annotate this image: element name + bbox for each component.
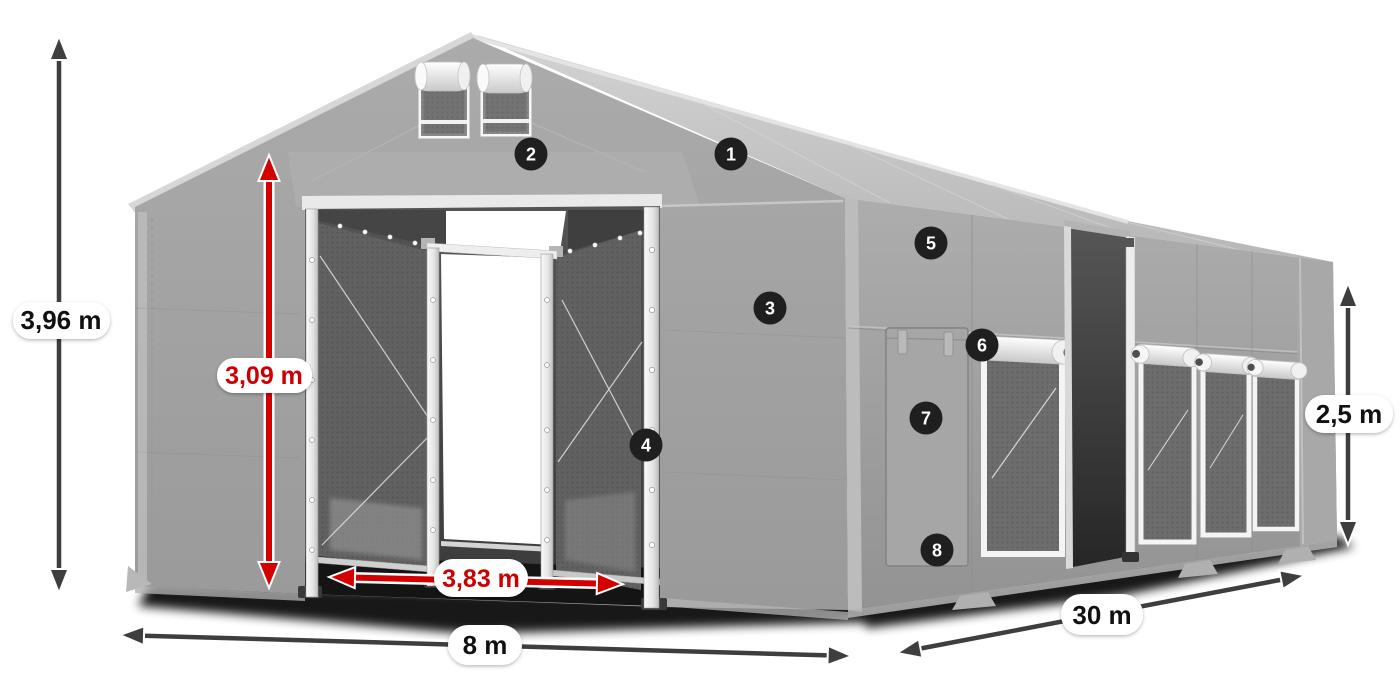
badge-number: 2 [526, 145, 536, 165]
badge-number: 4 [641, 436, 651, 456]
feature-badge-3[interactable]: 3 [754, 292, 787, 325]
badge-number: 8 [932, 541, 942, 561]
dim-side-height-label: 2,5 m [1305, 395, 1393, 433]
length-value: 30 m [1072, 600, 1131, 630]
side-door-flap [886, 328, 968, 566]
side-window-3 [1194, 353, 1260, 535]
side-height-value: 2,5 m [1316, 399, 1383, 429]
dim-width-label: 8 m [448, 625, 522, 665]
dim-door-width-label: 3,83 m [434, 559, 528, 597]
side-sliding-door-opening [1064, 220, 1139, 569]
gable-vent-right [477, 64, 532, 134]
total-height-value: 3,96 m [21, 305, 102, 335]
feature-badge-8[interactable]: 8 [921, 534, 954, 567]
front-door-opening [298, 206, 667, 610]
badge-number: 6 [977, 336, 987, 356]
feature-badge-5[interactable]: 5 [915, 227, 948, 260]
tent-body [126, 32, 1337, 620]
door-width-value: 3,83 m [442, 565, 520, 593]
door-height-value: 3,09 m [225, 362, 303, 390]
badge-number: 7 [921, 409, 931, 429]
badge-number: 1 [726, 145, 736, 165]
tent-product-illustration: 3,96 m 3,09 m 3,83 m 8 m 30 m 2,5 m 1 2 … [0, 0, 1400, 700]
feature-badge-4[interactable]: 4 [630, 429, 663, 462]
feature-badge-1[interactable]: 1 [715, 138, 748, 171]
tent-product-page: 3,96 m 3,09 m 3,83 m 8 m 30 m 2,5 m 1 2 … [0, 0, 1400, 700]
side-window-1 [969, 335, 1076, 554]
badge-number: 5 [926, 234, 936, 254]
feature-badge-2[interactable]: 2 [515, 138, 548, 171]
side-window-4 [1247, 359, 1308, 529]
dim-door-height-label: 3,09 m [217, 358, 312, 393]
side-window-2 [1130, 344, 1201, 542]
feature-badge-6[interactable]: 6 [966, 329, 999, 362]
dim-length-label: 30 m [1061, 594, 1143, 635]
gable-vent-left [415, 62, 470, 136]
feature-badge-7[interactable]: 7 [910, 402, 943, 435]
dim-total-height-label: 3,96 m [13, 302, 110, 339]
width-value: 8 m [463, 630, 508, 660]
badge-number: 3 [765, 299, 775, 319]
